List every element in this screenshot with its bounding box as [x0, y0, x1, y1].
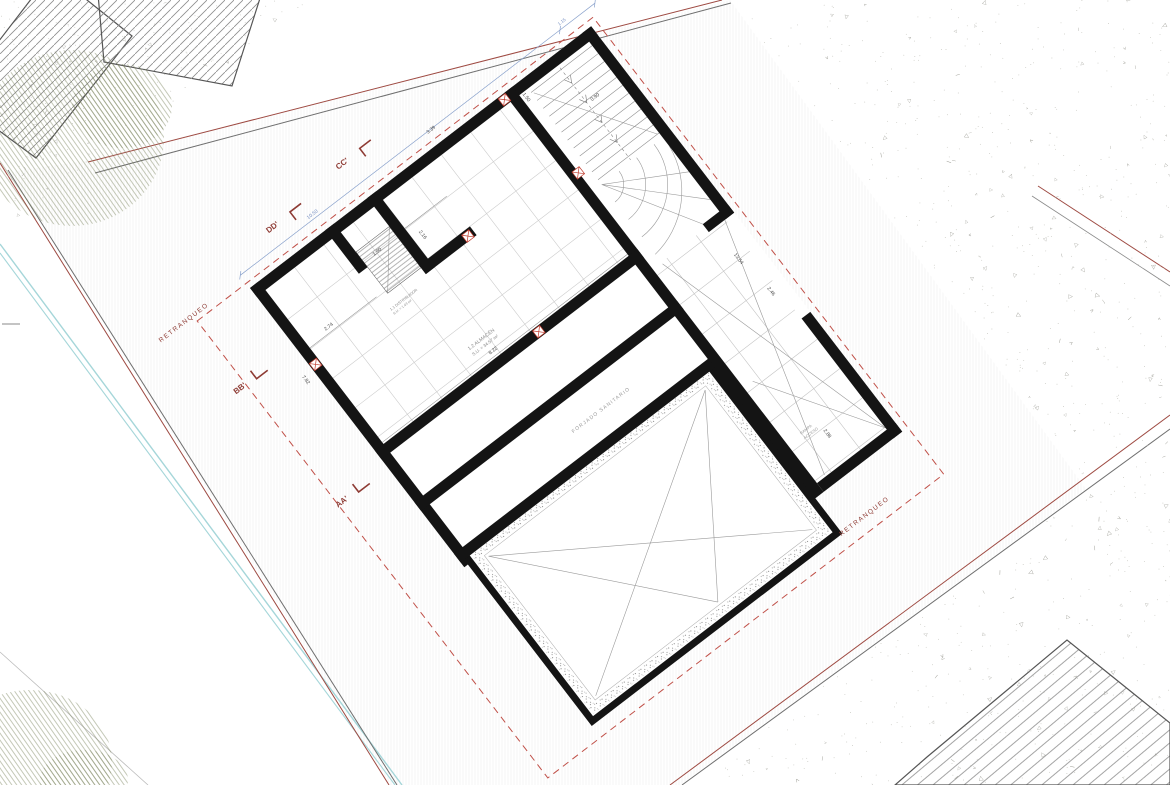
terrain-symbol: ◁: [1065, 371, 1071, 378]
terrain-dot: [23, 178, 24, 179]
terrain-dot: [245, 22, 246, 23]
terrain-symbol: ▷: [271, 16, 278, 23]
terrain-dot: [1015, 570, 1016, 571]
terrain-symbol: ▷: [843, 15, 850, 20]
terrain-dot: [85, 23, 86, 24]
terrain-dot: [764, 42, 765, 43]
terrain-dot: [86, 162, 87, 163]
terrain-dot: [1043, 47, 1044, 48]
terrain-dot: [1081, 0, 1082, 1]
terrain-dot: [887, 121, 888, 122]
terrain-dot: [1114, 491, 1115, 492]
terrain-dot: [989, 153, 990, 154]
terrain-symbol: ◁: [1012, 273, 1019, 278]
terrain-dot: [48, 167, 49, 168]
terrain-dot: [838, 88, 839, 89]
terrain-dot: [1121, 551, 1122, 552]
terrain-dot: [1071, 269, 1072, 270]
terrain-dot: [1124, 571, 1125, 572]
terrain-symbol: <: [1122, 45, 1129, 50]
terrain-symbol: /: [1092, 544, 1096, 550]
terrain-dot: [1048, 236, 1049, 237]
terrain-dot: [1151, 765, 1152, 766]
terrain-dot: [1038, 27, 1039, 28]
site-plan-canvas: ◁△◁△◁▷◁<<</^<//▷▷◁◁^<◁<△◁△/◁//<△/◁◁▷/^▷/…: [0, 0, 1170, 785]
terrain-dot: [1040, 666, 1041, 667]
terrain-symbol: ▷: [1062, 411, 1068, 417]
terrain-dot: [257, 4, 258, 5]
terrain-dot: [215, 27, 216, 28]
terrain-dot: [1008, 644, 1009, 645]
terrain-dot: [1168, 207, 1169, 208]
terrain-dot: [990, 54, 991, 55]
terrain-dot: [265, 6, 266, 7]
terrain-dot: [914, 56, 915, 57]
terrain-dot: [1091, 734, 1092, 735]
terrain-dot: [1030, 558, 1031, 559]
terrain-dot: [1140, 117, 1141, 118]
terrain-dot: [81, 109, 82, 110]
terrain-dot: [1108, 359, 1109, 360]
terrain-dot: [823, 686, 824, 687]
terrain-dot: [914, 60, 915, 61]
terrain-symbol: ◁: [1068, 293, 1073, 299]
terrain-dot: [1048, 348, 1049, 349]
terrain-symbol: /: [1109, 145, 1112, 150]
terrain-dot: [921, 776, 922, 777]
terrain-symbol: ▷: [897, 101, 903, 107]
terrain-symbol: ^: [969, 233, 975, 236]
terrain-dot: [1063, 598, 1064, 599]
terrain-dot: [89, 154, 90, 155]
terrain-dot: [991, 744, 992, 745]
terrain-dot: [998, 14, 999, 15]
terrain-dot: [1127, 1, 1128, 2]
terrain-dot: [1033, 175, 1034, 176]
terrain-dot: [951, 205, 952, 206]
terrain-dot: [1111, 86, 1112, 87]
terrain-dot: [1006, 365, 1007, 366]
terrain-dot: [1126, 519, 1127, 520]
terrain-dot: [977, 748, 978, 749]
terrain-dot: [872, 722, 873, 723]
terrain-dot: [1023, 564, 1024, 565]
terrain-symbol: /: [878, 151, 883, 158]
terrain-dot: [970, 174, 971, 175]
terrain-dot: [260, 15, 261, 16]
terrain-dot: [181, 50, 182, 51]
terrain-dot: [191, 78, 192, 79]
terrain-dot: [1063, 155, 1064, 156]
terrain-dot: [1053, 674, 1054, 675]
terrain-dot: [1160, 382, 1161, 383]
terrain-dot: [1009, 115, 1010, 116]
terrain-dot: [281, 11, 282, 12]
terrain-dot: [13, 44, 14, 45]
terrain-dot: [1071, 579, 1072, 580]
terrain-dot: [1049, 133, 1050, 134]
terrain-dot: [945, 604, 946, 605]
terrain-dot: [917, 118, 918, 119]
terrain-dot: [117, 116, 118, 117]
terrain-dot: [1136, 194, 1137, 195]
terrain-dot: [1026, 301, 1027, 302]
terrain-symbol: ^: [1072, 265, 1076, 271]
terrain-dot: [1137, 680, 1138, 681]
terrain-dot: [67, 149, 68, 150]
terrain-dot: [969, 289, 970, 290]
terrain-dot: [1116, 180, 1117, 181]
terrain-dot: [847, 144, 848, 145]
terrain-dot: [846, 742, 847, 743]
terrain-dot: [1079, 165, 1080, 166]
terrain-dot: [1163, 472, 1164, 473]
terrain-dot: [788, 767, 789, 768]
terrain-dot: [69, 45, 70, 46]
terrain-dot: [725, 768, 726, 769]
terrain-symbol: △: [982, 0, 989, 6]
terrain-symbol: ^: [1070, 429, 1077, 434]
terrain-symbol: ▷: [999, 193, 1005, 198]
terrain-dot: [1085, 233, 1086, 234]
terrain-symbol: △: [952, 29, 957, 33]
terrain-dot: [1109, 157, 1110, 158]
terrain-dot: [1111, 200, 1112, 201]
terrain-symbol: <: [968, 666, 973, 672]
terrain-dot: [186, 53, 187, 54]
terrain-dot: [1022, 245, 1023, 246]
terrain-dot: [1098, 747, 1099, 748]
terrain-dot: [871, 680, 872, 681]
terrain-dot: [1123, 477, 1124, 478]
terrain-dot: [1060, 68, 1061, 69]
terrain-dot: [79, 45, 80, 46]
terrain-dot: [987, 305, 988, 306]
terrain-dot: [1104, 652, 1105, 653]
terrain-dot: [896, 122, 897, 123]
terrain-dot: [1123, 29, 1124, 30]
terrain-dot: [921, 178, 922, 179]
terrain-dot: [1006, 736, 1007, 737]
terrain-dot: [1066, 773, 1067, 774]
terrain-dot: [1159, 569, 1160, 570]
terrain-dot: [928, 707, 929, 708]
terrain-dot: [1119, 558, 1120, 559]
terrain-symbol: ◁: [930, 720, 936, 726]
terrain-dot: [919, 764, 920, 765]
terrain-dot: [28, 45, 29, 46]
terrain-dot: [1052, 734, 1053, 735]
terrain-dot: [181, 67, 182, 68]
terrain-symbol: △: [983, 265, 988, 272]
terrain-dot: [1160, 50, 1161, 51]
terrain-dot: [70, 84, 71, 85]
terrain-dot: [1122, 413, 1123, 414]
terrain-dot: [1083, 473, 1084, 474]
terrain-dot: [995, 22, 996, 23]
terrain-dot: [963, 694, 964, 695]
terrain-symbol: /: [952, 159, 958, 161]
terrain-dot: [1097, 186, 1098, 187]
terrain-dot: [1136, 104, 1137, 105]
terrain-dot: [839, 61, 840, 62]
terrain-symbol: ▷: [963, 219, 969, 224]
terrain-dot: [830, 21, 831, 22]
terrain-dot: [818, 714, 819, 715]
terrain-dot: [958, 93, 959, 94]
terrain-dot: [77, 74, 78, 75]
terrain-dot: [1128, 417, 1129, 418]
terrain-dot: [1058, 323, 1059, 324]
terrain-dot: [900, 654, 901, 655]
terrain-dot: [1018, 709, 1019, 710]
terrain-dot: [945, 237, 946, 238]
terrain-dot: [1003, 612, 1004, 613]
terrain-symbol: /: [1161, 454, 1166, 459]
terrain-symbol: <: [1067, 339, 1074, 346]
terrain-dot: [1163, 566, 1164, 567]
terrain-symbol: ◁: [1066, 614, 1071, 620]
terrain-dot: [1023, 251, 1024, 252]
terrain-dot: [1165, 580, 1166, 581]
terrain-dot: [991, 714, 992, 715]
terrain-dot: [850, 143, 851, 144]
terrain-dot: [50, 152, 51, 153]
terrain-dot: [983, 739, 984, 740]
terrain-dot: [169, 30, 170, 31]
terrain-dot: [211, 61, 212, 62]
terrain-dot: [197, 16, 198, 17]
terrain-dot: [15, 198, 16, 199]
terrain-symbol: ▷: [1119, 603, 1125, 609]
terrain-dot: [947, 114, 948, 115]
terrain-symbol: △: [1015, 312, 1023, 319]
terrain-dot: [981, 66, 982, 67]
terrain-dot: [128, 62, 129, 63]
terrain-dot: [881, 643, 882, 644]
terrain-dot: [1144, 345, 1145, 346]
terrain-symbol: /: [1077, 27, 1080, 32]
terrain-dot: [1156, 704, 1157, 705]
terrain-dot: [1119, 230, 1120, 231]
terrain-dot: [1055, 435, 1056, 436]
terrain-dot: [729, 776, 730, 777]
terrain-symbol: ◁: [1151, 264, 1157, 269]
terrain-dot: [1018, 227, 1019, 228]
terrain-dot: [965, 726, 966, 727]
terrain-dot: [1055, 107, 1056, 108]
terrain-symbol: /: [934, 672, 938, 678]
terrain-dot: [1086, 175, 1087, 176]
terrain-dot: [46, 70, 47, 71]
terrain-dot: [846, 683, 847, 684]
terrain-dot: [1144, 737, 1145, 738]
terrain-dot: [1150, 123, 1151, 124]
terrain-symbol: <: [1085, 619, 1089, 622]
terrain-dot: [173, 101, 174, 102]
terrain-dot: [216, 40, 217, 41]
terrain-dot: [1157, 599, 1158, 600]
terrain-dot: [1051, 58, 1052, 59]
terrain-symbol: ◁: [1079, 61, 1085, 67]
terrain-dot: [1018, 74, 1019, 75]
terrain-dot: [1150, 532, 1151, 533]
terrain-dot: [115, 87, 116, 88]
terrain-dot: [983, 679, 984, 680]
terrain-dot: [898, 150, 899, 151]
terrain-dot: [861, 776, 862, 777]
terrain-dot: [939, 116, 940, 117]
terrain-dot: [185, 87, 186, 88]
terrain-dot: [1, 16, 2, 17]
terrain-dot: [1100, 654, 1101, 655]
terrain-dot: [64, 105, 65, 106]
terrain-symbol: /: [981, 590, 986, 595]
terrain-dot: [920, 624, 921, 625]
terrain-symbol: <: [1049, 226, 1055, 232]
terrain-dot: [772, 756, 773, 757]
terrain-dot: [990, 645, 991, 646]
terrain-dot: [1145, 252, 1146, 253]
terrain-dot: [891, 724, 892, 725]
terrain-dot: [833, 7, 834, 8]
terrain-dot: [1044, 224, 1045, 225]
terrain-dot: [1110, 233, 1111, 234]
terrain-dot: [1106, 70, 1107, 71]
terrain-dot: [1053, 601, 1054, 602]
terrain-dot: [1138, 264, 1139, 265]
terrain-dot: [1089, 186, 1090, 187]
terrain-dot: [1086, 500, 1087, 501]
terrain-dot: [1057, 384, 1058, 385]
terrain-dot: [1104, 356, 1105, 357]
terrain-dot: [83, 108, 84, 109]
terrain-dot: [1033, 62, 1034, 63]
terrain-dot: [1073, 403, 1074, 404]
terrain-dot: [1164, 140, 1165, 141]
terrain-dot: [875, 647, 876, 648]
terrain-dot: [1074, 170, 1075, 171]
terrain-symbol: /: [990, 213, 996, 219]
terrain-dot: [779, 55, 780, 56]
terrain-dot: [918, 60, 919, 61]
terrain-dot: [1127, 560, 1128, 561]
terrain-dot: [967, 25, 968, 26]
terrain-dot: [954, 240, 955, 241]
terrain-dot: [917, 16, 918, 17]
terrain-dot: [1037, 371, 1038, 372]
terrain-dot: [246, 4, 247, 5]
terrain-dot: [154, 24, 155, 25]
terrain-dot: [995, 81, 996, 82]
terrain-dot: [53, 175, 54, 176]
terrain-dot: [967, 39, 968, 40]
terrain-symbol: <: [907, 34, 912, 41]
terrain-dot: [1010, 143, 1011, 144]
terrain-dot: [1002, 91, 1003, 92]
terrain-dot: [245, 35, 246, 36]
terrain-symbol: <: [1124, 162, 1131, 167]
terrain-dot: [1109, 424, 1110, 425]
terrain-dot: [1139, 33, 1140, 34]
terrain-dot: [926, 647, 927, 648]
terrain-dot: [737, 759, 738, 760]
terrain-dot: [1076, 110, 1077, 111]
terrain-dot: [886, 133, 887, 134]
terrain-symbol: △: [1163, 503, 1170, 510]
terrain-dot: [1119, 302, 1120, 303]
terrain-dot: [948, 619, 949, 620]
terrain-dot: [1007, 211, 1008, 212]
terrain-dot: [929, 723, 930, 724]
terrain-symbol: ▷: [1141, 133, 1148, 139]
terrain-dot: [1032, 49, 1033, 50]
terrain-dot: [910, 726, 911, 727]
terrain-dot: [960, 626, 961, 627]
terrain-dot: [1058, 666, 1059, 667]
terrain-dot: [768, 727, 769, 728]
terrain-dot: [1104, 521, 1105, 522]
terrain-dot: [982, 289, 983, 290]
terrain-dot: [830, 38, 831, 39]
terrain-dot: [8, 176, 9, 177]
terrain-dot: [1036, 234, 1037, 235]
terrain-dot: [72, 123, 73, 124]
terrain-dot: [985, 782, 986, 783]
terrain-dot: [1131, 258, 1132, 259]
terrain-dot: [977, 759, 978, 760]
terrain-symbol: /: [1164, 440, 1168, 445]
terrain-dot: [1121, 216, 1122, 217]
terrain-dot: [885, 81, 886, 82]
terrain-dot: [919, 220, 920, 221]
terrain-dot: [1020, 367, 1021, 368]
terrain-dot: [1163, 709, 1164, 710]
terrain-dot: [81, 2, 82, 3]
terrain-dot: [229, 26, 230, 27]
terrain-dot: [961, 642, 962, 643]
terrain-symbol: △: [986, 674, 992, 680]
terrain-dot: [965, 45, 966, 46]
terrain-dot: [1008, 332, 1009, 333]
terrain-dot: [1030, 64, 1031, 65]
terrain-dot: [1145, 378, 1146, 379]
terrain-dot: [759, 748, 760, 749]
terrain-dot: [1077, 678, 1078, 679]
terrain-dot: [100, 78, 101, 79]
terrain-dot: [1098, 63, 1099, 64]
terrain-dot: [1121, 211, 1122, 212]
terrain-dot: [1106, 259, 1107, 260]
terrain-dot: [1162, 503, 1163, 504]
terrain-dot: [12, 39, 13, 40]
terrain-dot: [186, 52, 187, 53]
terrain-dot: [727, 769, 728, 770]
terrain-dot: [1024, 3, 1025, 4]
terrain-dot: [941, 49, 942, 50]
terrain-dot: [804, 768, 805, 769]
terrain-dot: [975, 128, 976, 129]
terrain-dot: [1064, 34, 1065, 35]
terrain-dot: [948, 674, 949, 675]
terrain-symbol: △: [1113, 527, 1119, 533]
terrain-dot: [1045, 383, 1046, 384]
terrain-dot: [1084, 462, 1085, 463]
boundary-gray-east: [1032, 196, 1170, 286]
terrain-dot: [832, 15, 833, 16]
terrain-dot: [107, 21, 108, 22]
terrain-dot: [958, 245, 959, 246]
